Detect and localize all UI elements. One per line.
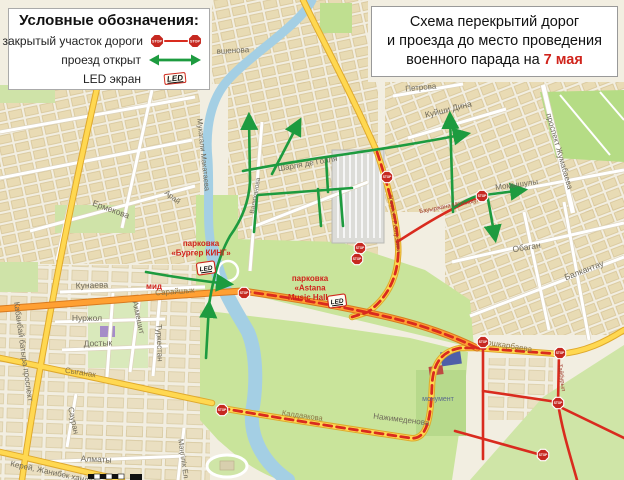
title-line-3: военного парада на 7 мая <box>376 51 613 70</box>
stop-sign-icon: STOP <box>354 242 365 253</box>
stop-sign-icon: STOP <box>476 190 487 201</box>
street-label-kunaeva: Кунаева <box>75 279 108 290</box>
street-label-ovshenova: вшенова <box>216 45 250 56</box>
poi-label-mid: мид <box>146 282 162 291</box>
svg-text:STOP: STOP <box>356 246 365 250</box>
parking-label-1: парковка <box>292 274 329 283</box>
svg-text:STOP: STOP <box>479 340 488 344</box>
legend-item-closed-road: закрытый участок дороги STOPSTOP <box>15 31 203 50</box>
stop-sign-icon: STOP <box>381 171 392 182</box>
led-screen-icon: LED <box>163 72 186 85</box>
parking-label-0: парковка <box>183 239 220 248</box>
legend-box: Условные обозначения: закрытый участок д… <box>8 8 210 90</box>
legend-title: Условные обозначения: <box>15 12 203 29</box>
stop-sign-icon: STOP <box>150 34 163 47</box>
street-label-almaty: Алматы <box>80 453 112 465</box>
stop-sign-icon: STOP <box>552 397 563 408</box>
stop-sign-icon: STOP <box>216 404 227 415</box>
svg-text:STOP: STOP <box>383 175 392 179</box>
stop-sign-icon: STOP <box>188 34 201 47</box>
led-screen-icon: LED <box>327 294 346 308</box>
parking-label-1: «Astana <box>294 284 326 293</box>
parking-label-0: «Бургер КИНГ» <box>171 249 231 258</box>
closed-road-icon: STOPSTOP <box>149 33 203 49</box>
stop-sign-icon: STOP <box>238 287 249 298</box>
svg-text:STOP: STOP <box>218 408 227 412</box>
svg-text:STOP: STOP <box>152 39 162 43</box>
stop-sign-icon: STOP <box>537 449 548 460</box>
stop-sign-icon: STOP <box>351 253 362 264</box>
open-road-icon <box>147 53 203 67</box>
title-box: Схема перекрытий дорог и проезда до мест… <box>371 6 618 77</box>
svg-text:STOP: STOP <box>190 39 200 43</box>
parking-label-1: Music Hall» <box>288 293 333 302</box>
svg-text:STOP: STOP <box>240 291 249 295</box>
street-label-dostyk: Достык <box>83 337 112 348</box>
legend-item-led-screen: LED экран LED <box>15 69 203 88</box>
stop-sign-icon: STOP <box>554 347 565 358</box>
title-line-2: и проезда до место проведения <box>376 32 613 51</box>
poi-label-monument: монумент <box>422 396 455 403</box>
parade-date: 7 мая <box>544 52 583 68</box>
street-label-nurzhol: Нуржол <box>72 313 102 323</box>
svg-text:STOP: STOP <box>478 194 487 198</box>
legend-item-open-road: проезд открыт <box>15 50 203 69</box>
svg-text:STOP: STOP <box>353 257 362 261</box>
svg-text:STOP: STOP <box>539 453 548 457</box>
stop-sign-icon: STOP <box>477 336 488 347</box>
led-screen-icon: LED <box>196 261 215 275</box>
title-line-1: Схема перекрытий дорог <box>376 13 613 32</box>
road-closure-map-page: вшеноваМукагали МакатаеваЕрмековаАрайШар… <box>0 0 624 480</box>
svg-text:STOP: STOP <box>556 351 565 355</box>
svg-text:STOP: STOP <box>554 401 563 405</box>
street-label-turkestan: Туркестан <box>154 324 164 362</box>
